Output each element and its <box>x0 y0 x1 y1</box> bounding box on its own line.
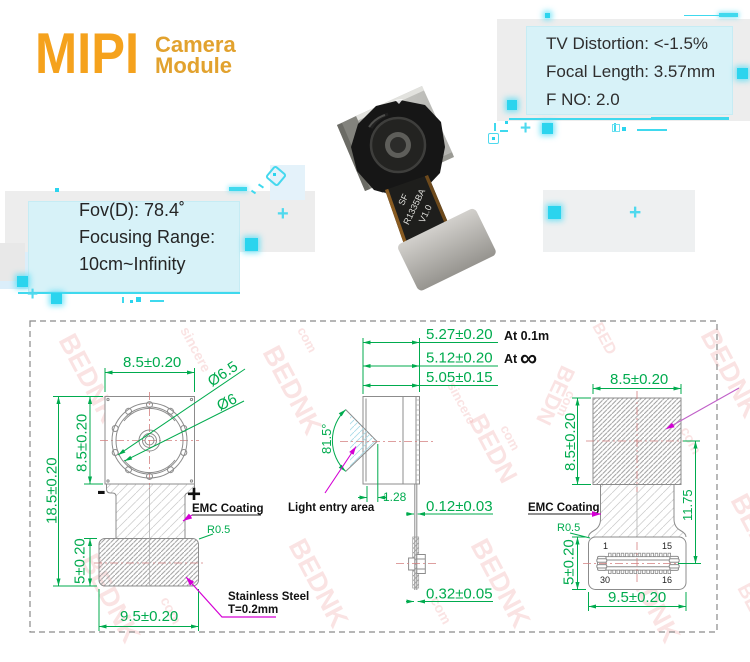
svg-text:1.28: 1.28 <box>383 490 407 504</box>
svg-text:81.5°: 81.5° <box>319 423 334 454</box>
svg-text:sincere: sincere <box>177 324 214 375</box>
svg-text:At: At <box>504 352 518 366</box>
svg-text:5±0.20: 5±0.20 <box>561 539 578 585</box>
svg-text:8.5±0.20: 8.5±0.20 <box>123 354 181 371</box>
svg-text:16: 16 <box>662 575 672 585</box>
svg-text:BEDNK: BEDNK <box>725 489 750 588</box>
svg-text:9.5±0.20: 9.5±0.20 <box>120 608 178 625</box>
svg-text:0.32±0.05: 0.32±0.05 <box>426 586 493 603</box>
svg-text:Stainless Steel: Stainless Steel <box>228 591 309 603</box>
svg-text:0.12±0.03: 0.12±0.03 <box>426 498 493 515</box>
svg-text:11.75: 11.75 <box>680 489 695 521</box>
svg-text:18.5±0.20: 18.5±0.20 <box>44 457 61 524</box>
svg-text:BEDNK: BEDNK <box>283 534 355 633</box>
svg-text:5.12±0.20: 5.12±0.20 <box>426 350 493 367</box>
svg-text:R0.5: R0.5 <box>207 524 230 536</box>
svg-text:5.27±0.20: 5.27±0.20 <box>426 326 493 343</box>
svg-text:Light entry area: Light entry area <box>288 502 375 514</box>
svg-text:5.05±0.15: 5.05±0.15 <box>426 369 493 386</box>
svg-text:8.5±0.20: 8.5±0.20 <box>74 414 91 472</box>
svg-text:30: 30 <box>600 575 610 585</box>
svg-text:-: - <box>97 475 106 505</box>
svg-text:EMC Coating: EMC Coating <box>192 503 264 515</box>
svg-text:9.5±0.20: 9.5±0.20 <box>608 589 666 606</box>
svg-text:∞: ∞ <box>520 345 537 372</box>
svg-text:BED: BED <box>733 580 750 628</box>
svg-text:BEDNK: BEDNK <box>465 534 537 633</box>
svg-text:BEDNK: BEDNK <box>257 341 329 440</box>
svg-text:1: 1 <box>603 541 608 551</box>
svg-text:5±0.20: 5±0.20 <box>72 538 89 584</box>
svg-text:8.5±0.20: 8.5±0.20 <box>562 413 579 471</box>
svg-text:com: com <box>294 324 320 355</box>
svg-text:R0.5: R0.5 <box>557 522 580 534</box>
svg-text:BED: BED <box>588 320 619 358</box>
svg-text:T=0.2mm: T=0.2mm <box>228 604 278 616</box>
svg-text:At 0.1m: At 0.1m <box>504 329 549 343</box>
svg-text:EMC Coating: EMC Coating <box>528 502 600 514</box>
svg-text:15: 15 <box>662 541 672 551</box>
svg-text:Ø6: Ø6 <box>214 390 239 414</box>
svg-text:8.5±0.20: 8.5±0.20 <box>610 371 668 388</box>
